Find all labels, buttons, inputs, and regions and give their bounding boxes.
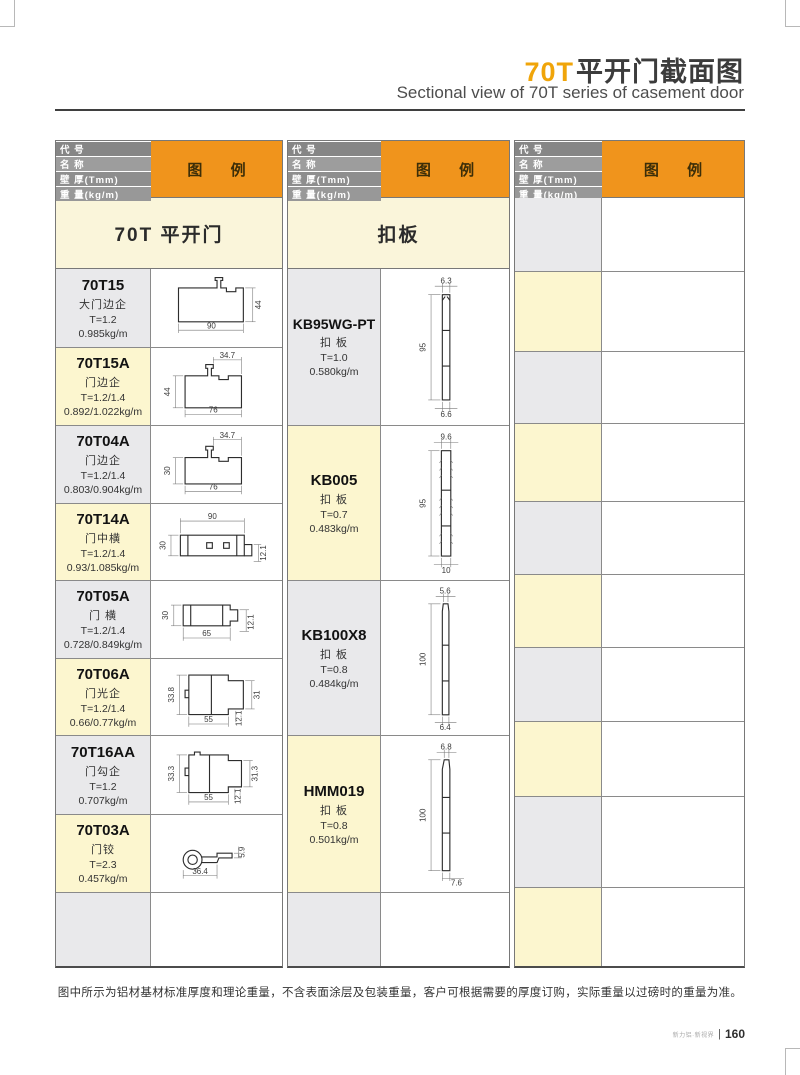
profile-code: KB005: [311, 472, 358, 489]
header-thickness: 壁 厚(Tmm): [288, 172, 381, 186]
page-subtitle: Sectional view of 70T series of casement…: [397, 83, 744, 103]
profile-row-empty: [288, 893, 509, 968]
footer-brand: 新力铝·新视界: [673, 1030, 715, 1039]
profile-thickness: T=1.2: [89, 781, 116, 793]
header-thickness: 壁 厚(Tmm): [56, 172, 151, 186]
profile-weight: 0.501kg/m: [309, 834, 358, 846]
profile-weight: 0.707kg/m: [78, 795, 127, 807]
profile-weight: 0.985kg/m: [78, 328, 127, 340]
dim-label: 65: [202, 629, 211, 638]
profile-thickness: T=2.3: [89, 859, 116, 871]
profile-row: 70T16AA 门勾企 T=1.2 0.707kg/m 33.3 31.3: [56, 736, 282, 815]
table-group-70t: 代 号 名 称 壁 厚(Tmm) 重 量(kg/m) 图 例 70T 平开门 7…: [55, 140, 283, 968]
profile-name: 门边企: [85, 374, 121, 390]
dim-label: 5.6: [439, 586, 451, 595]
profile-code: 70T15A: [76, 355, 129, 372]
profile-row: 70T03A 门铰 T=2.3 0.457kg/m 5.9 36.4: [56, 815, 282, 893]
dim-label: 30: [163, 466, 172, 475]
profile-name: 门 横: [89, 607, 117, 623]
profile-thickness: T=1.2/1.4: [81, 392, 126, 404]
dim-label: 12.1: [234, 710, 243, 726]
dim-label: 9.6: [440, 432, 452, 441]
dim-label: 76: [209, 406, 218, 415]
table-group-empty: 代 号 名 称 壁 厚(Tmm) 重 量(kg/m) 图 例: [514, 140, 745, 968]
dim-label: 55: [204, 715, 213, 724]
dim-label: 44: [163, 387, 172, 396]
profile-row: 70T04A 门边企 T=1.2/1.4 0.803/0.904kg/m 34.…: [56, 426, 282, 504]
profile-diagram: 6.3 95 6.6: [381, 269, 509, 425]
table-header: 代 号 名 称 壁 厚(Tmm) 重 量(kg/m) 图 例: [288, 141, 509, 198]
profile-code: 70T03A: [76, 822, 129, 839]
dim-label: 76: [209, 483, 218, 492]
profile-row: 70T15A 门边企 T=1.2/1.4 0.892/1.022kg/m 34.…: [56, 348, 282, 426]
crop-mark-top-left: [0, 0, 15, 27]
profile-name: 门中横: [85, 530, 121, 546]
profile-thickness: T=1.2/1.4: [81, 625, 126, 637]
table-header: 代 号 名 称 壁 厚(Tmm) 重 量(kg/m) 图 例: [56, 141, 282, 198]
profile-diagram: 90 30 12.1: [151, 504, 282, 580]
profile-name: 门铰: [91, 841, 115, 857]
profile-thickness: T=1.2: [89, 314, 116, 326]
header-name: 名 称: [56, 157, 151, 171]
profile-name: 门光企: [85, 685, 121, 701]
profile-name: 扣 板: [320, 802, 348, 818]
header-weight: 重 量(kg/m): [288, 187, 381, 201]
profile-thickness: T=1.2/1.4: [81, 548, 126, 560]
dim-label: 30: [161, 611, 170, 620]
dim-label: 36.4: [192, 867, 208, 876]
dim-label: 90: [208, 512, 217, 521]
profile-name: 门边企: [85, 452, 121, 468]
profile-diagram: 90 44: [151, 269, 282, 347]
profile-row: 70T05A 门 横 T=1.2/1.4 0.728/0.849kg/m 30 …: [56, 581, 282, 659]
profile-row-empty: [515, 722, 744, 797]
profile-weight: 0.892/1.022kg/m: [64, 406, 142, 418]
profile-name: 扣 板: [320, 334, 348, 350]
profile-row: KB100X8 扣 板 T=0.8 0.484kg/m 5.6 100: [288, 581, 509, 736]
profile-name: 扣 板: [320, 491, 348, 507]
dim-label: 34.7: [220, 431, 236, 440]
profile-row-empty: [515, 888, 744, 968]
profile-row: 70T14A 门中横 T=1.2/1.4 0.93/1.085kg/m 90 3…: [56, 504, 282, 581]
profile-name: 大门边企: [79, 296, 127, 312]
profile-diagram: 9.6 95 10: [381, 426, 509, 580]
profile-thickness: T=0.8: [320, 664, 347, 676]
profile-code: 70T16AA: [71, 744, 135, 761]
profile-code: KB95WG-PT: [293, 316, 375, 332]
section-title-70t: 70T 平开门: [56, 198, 282, 269]
profile-row: 70T15 大门边企 T=1.2 0.985kg/m 90 44: [56, 269, 282, 348]
profile-diagram: 34.7 44 76: [151, 348, 282, 425]
dim-label: 31: [252, 690, 261, 699]
profile-code: 70T14A: [76, 511, 129, 528]
header-legend: 图 例: [381, 141, 509, 197]
profile-thickness: T=1.2/1.4: [81, 703, 126, 715]
crop-mark-bottom-right: [785, 1048, 800, 1075]
dim-label: 34.7: [220, 351, 236, 360]
profile-row-empty: [515, 502, 744, 575]
profile-diagram: 33.8 31 55 12.1: [151, 659, 282, 735]
dim-label: 6.4: [439, 722, 451, 730]
profile-code: HMM019: [304, 783, 365, 800]
profile-diagram: 34.7 30 76: [151, 426, 282, 503]
profile-diagram: 5.6 100 6.4: [381, 581, 509, 735]
profile-weight: 0.93/1.085kg/m: [67, 562, 139, 574]
table-group-kb: 代 号 名 称 壁 厚(Tmm) 重 量(kg/m) 图 例 扣板 KB95WG…: [287, 140, 510, 968]
dim-label: 100: [418, 808, 427, 822]
header-code: 代 号: [288, 142, 381, 156]
dim-label: 100: [418, 652, 427, 666]
dim-label: 55: [204, 793, 213, 802]
profile-row-empty: [515, 424, 744, 502]
profile-weight: 0.484kg/m: [309, 678, 358, 690]
catalog-page: 70T平开门截面图 Sectional view of 70T series o…: [0, 0, 800, 1075]
profile-weight: 0.580kg/m: [309, 366, 358, 378]
profile-thickness: T=1.2/1.4: [81, 470, 126, 482]
profile-code: 70T06A: [76, 666, 129, 683]
dim-label: 12.1: [259, 545, 268, 561]
page-footer: 新力铝·新视界 | 160: [673, 1027, 745, 1041]
header-name: 名 称: [515, 157, 602, 171]
header-legend: 图 例: [602, 141, 744, 197]
profile-diagram: 6.8 100 7.6: [381, 736, 509, 892]
profile-thickness: T=1.0: [320, 352, 347, 364]
section-title-kb: 扣板: [288, 198, 509, 269]
dim-label: 5.9: [237, 846, 246, 858]
profile-code: 70T15: [82, 277, 125, 294]
dim-label: 30: [158, 541, 167, 550]
profile-row: KB005 扣 板 T=0.7 0.483kg/m 9.6 95: [288, 426, 509, 581]
dim-label: 33.3: [167, 766, 176, 782]
header-rule: [55, 109, 745, 111]
dim-label: 95: [418, 498, 427, 507]
dim-label: 90: [207, 322, 216, 331]
profile-row: KB95WG-PT 扣 板 T=1.0 0.580kg/m 6.3 95: [288, 269, 509, 426]
profile-row-empty: [515, 797, 744, 888]
profile-name: 门勾企: [85, 763, 121, 779]
footer-separator: |: [718, 1028, 721, 1040]
table-header: 代 号 名 称 壁 厚(Tmm) 重 量(kg/m) 图 例: [515, 141, 744, 198]
profile-name: 扣 板: [320, 646, 348, 662]
profile-code: KB100X8: [301, 627, 366, 644]
header-legend: 图 例: [151, 141, 282, 197]
header-name: 名 称: [288, 157, 381, 171]
profile-code: 70T04A: [76, 433, 129, 450]
profile-thickness: T=0.7: [320, 509, 347, 521]
profile-row-empty: [515, 575, 744, 648]
profile-row: HMM019 扣 板 T=0.8 0.501kg/m 6.8 100: [288, 736, 509, 893]
profile-diagram: 5.9 36.4: [151, 815, 282, 892]
header-thickness: 壁 厚(Tmm): [515, 172, 602, 186]
dim-label: 95: [418, 342, 427, 351]
profile-diagram: 33.3 31.3 55 12.1: [151, 736, 282, 814]
crop-mark-top-right: [785, 0, 800, 27]
profile-row-empty: [515, 198, 744, 272]
profile-weight: 0.483kg/m: [309, 523, 358, 535]
header-weight: 重 量(kg/m): [56, 187, 151, 201]
header-code: 代 号: [515, 142, 602, 156]
page-number: 160: [725, 1027, 745, 1041]
profile-thickness: T=0.8: [320, 820, 347, 832]
profile-weight: 0.457kg/m: [78, 873, 127, 885]
dim-label: 44: [254, 300, 263, 309]
header-code: 代 号: [56, 142, 151, 156]
footnote: 图中所示为铝材基材标准厚度和理论重量，不含表面涂层及包装重量，客户可根据需要的厚…: [0, 984, 800, 1000]
profile-weight: 0.728/0.849kg/m: [64, 639, 142, 651]
profile-diagram: 30 65 12.1: [151, 581, 282, 658]
profile-weight: 0.803/0.904kg/m: [64, 484, 142, 496]
profile-row-empty: [515, 272, 744, 352]
dim-label: 6.3: [440, 276, 452, 285]
profile-row: 70T06A 门光企 T=1.2/1.4 0.66/0.77kg/m 33.8 …: [56, 659, 282, 736]
dim-label: 6.6: [440, 410, 452, 419]
profile-row-empty: [515, 648, 744, 722]
dim-label: 33.8: [167, 687, 176, 703]
profile-row-empty: [515, 352, 744, 424]
profile-row-empty: [56, 893, 282, 968]
dim-label: 31.3: [250, 766, 259, 782]
dim-label: 12.1: [233, 788, 242, 804]
dim-label: 7.6: [451, 878, 463, 887]
dim-label: 6.8: [440, 742, 452, 751]
dim-label: 12.1: [247, 614, 256, 630]
dim-label: 10: [442, 566, 451, 575]
profile-code: 70T05A: [76, 588, 129, 605]
profile-weight: 0.66/0.77kg/m: [70, 717, 137, 729]
